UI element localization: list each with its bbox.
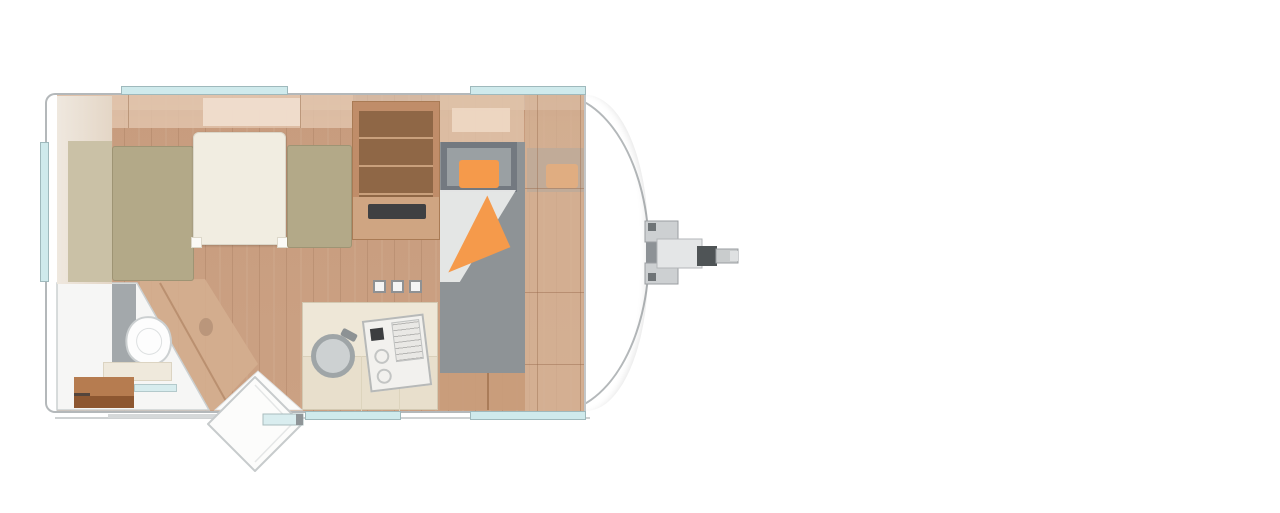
hitch-layer [0, 0, 1280, 513]
hitch-bolt-bottom [648, 273, 656, 281]
hitch-coupling-body [657, 239, 702, 268]
hitch-coupling-head [697, 246, 717, 266]
caravan-floorplan-canvas [0, 0, 1280, 513]
hitch-handle-tip [730, 251, 738, 261]
hitch-bolt-top [648, 223, 656, 231]
